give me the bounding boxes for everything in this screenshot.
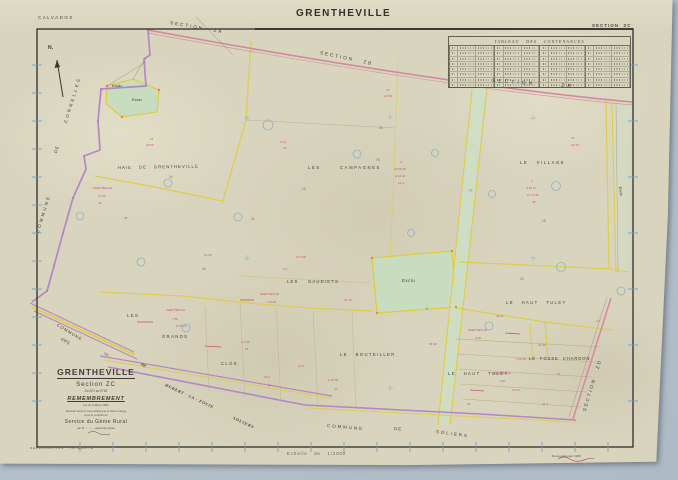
map-label: CLOS xyxy=(221,362,238,366)
parcel-number: 12 xyxy=(268,384,271,387)
map-label: SOLIERS xyxy=(436,430,469,439)
parcel-number: 7 20 30 xyxy=(516,358,526,361)
map-label: LES CAMPAGNES xyxy=(308,166,381,170)
map-label: d'IFS xyxy=(60,337,70,346)
subdivision-number: 13 xyxy=(302,188,306,191)
parcel-number: 4 xyxy=(531,180,533,183)
parcel-number: 14 50 xyxy=(204,254,212,257)
parcel-number: 29 50 xyxy=(146,144,154,147)
parcel-number: 31 A xyxy=(542,403,548,406)
subdivision-number: 16 xyxy=(202,268,206,271)
parcel-number: 75 xyxy=(571,137,574,140)
map-label: LE FOSSE CHARDON xyxy=(529,357,590,361)
parcel-number: 7 50 xyxy=(172,318,178,321)
parcel-number: 23 xyxy=(283,147,286,150)
map-label: DE xyxy=(394,427,402,432)
scanned-cadastral-sheet: CALVADOS GRENTHEVILLE SECTION ZC Echelle… xyxy=(0,0,678,480)
paper-shadow: CALVADOS GRENTHEVILLE SECTION ZC Echelle… xyxy=(0,0,678,480)
parcel-number: P 10 23 xyxy=(176,325,186,328)
parcel-number: GRENTHEVILLE xyxy=(166,310,185,313)
map-label: Exclu xyxy=(617,187,622,197)
parcel-number: 20 50 xyxy=(384,95,392,98)
map-label: LE BOUTEILLER xyxy=(340,353,396,357)
parcel-number: 2 A xyxy=(283,268,287,271)
map-label: DE xyxy=(54,145,61,154)
map-label: LES GAUDIETS xyxy=(287,280,339,284)
map-label: Exclu xyxy=(402,279,415,283)
parcel-number: 9 20 xyxy=(475,337,481,340)
parcel-number: GRENTHEVILLE xyxy=(492,373,511,376)
subdivision-number: 77 xyxy=(469,190,473,193)
map-label: Exclu xyxy=(132,98,142,102)
map-label: LE HAUT TULEY xyxy=(506,301,567,305)
parcel-number: 17 30 xyxy=(98,195,106,198)
parcel-number: 4 a xyxy=(596,320,600,323)
parcel-number: GRENTHEVILLE xyxy=(468,330,487,333)
map-label: SECTION ZA xyxy=(170,21,224,35)
parcel-number: 40 xyxy=(532,201,535,204)
subdivision-number: 25 xyxy=(379,127,383,130)
parcel-number: A 26 50 xyxy=(328,379,338,382)
map-label: Exclu xyxy=(112,84,122,88)
map-label: LE VILLAGE xyxy=(520,161,565,165)
map-label: Cin xyxy=(103,352,109,357)
parcel-number: 27 xyxy=(386,89,389,92)
parcel-number: 32 xyxy=(98,202,101,205)
subdivision-number: 12 xyxy=(520,278,524,281)
parcel-number: 20 40 xyxy=(571,144,579,147)
parcel-number: 12 a xyxy=(398,182,404,185)
map-paper: CALVADOS GRENTHEVILLE SECTION ZC Echelle… xyxy=(0,0,678,480)
parcel-number: 25 A xyxy=(264,376,270,379)
parcel-number: 12 50 xyxy=(512,389,520,392)
map-label: CORNELLES xyxy=(64,76,82,123)
parcel-number: 21 xyxy=(557,373,560,376)
subdivision-number: 14 xyxy=(169,176,173,179)
parcel-number: 4 xyxy=(400,161,402,164)
map-label: SECTION ZB xyxy=(492,79,574,90)
parcel-number: 36 xyxy=(124,217,127,220)
map-label: LES xyxy=(127,314,139,318)
parcel-number: A 20 12 xyxy=(526,187,536,190)
subdivision-number: 15 xyxy=(542,220,546,223)
parcel-number: 26 xyxy=(467,403,470,406)
map-label: COMMUNE xyxy=(36,194,52,234)
subdivision-number: 9 xyxy=(426,308,428,311)
map-label: HUBERT - LA - FOLIE xyxy=(164,383,214,409)
parcel-number: 4 30 xyxy=(499,380,505,383)
parcel-number: 17 A xyxy=(280,141,286,144)
map-label: SECTION ZB xyxy=(320,51,374,67)
revision-note-line2: GRENTHEVILLE ZC 1/2000 xyxy=(552,466,591,470)
parcel-number: 49 12 xyxy=(496,315,504,318)
parcel-number: A 2 50 xyxy=(241,341,250,344)
subdivision-number: 75 xyxy=(376,159,380,162)
parcel-number: 56 40 xyxy=(429,343,437,346)
parcel-number: A 16 32 xyxy=(395,175,405,178)
parcel-number: 47 xyxy=(334,388,337,391)
parcel-number: 25 xyxy=(245,348,248,351)
map-label: COMMUNE xyxy=(327,424,364,432)
map-label: HAIE DE GRENTHEVILLE xyxy=(118,165,199,171)
map-label: GRANDS xyxy=(162,335,188,339)
parcel-number: 21 xyxy=(150,138,153,141)
map-label: SECTION ZD xyxy=(583,359,603,412)
parcel-number: 25 40 xyxy=(538,344,546,347)
parcel-number: 12 A xyxy=(298,365,304,368)
parcel-number: 7 10 60 xyxy=(266,301,276,304)
map-label-layer: SECTION ZASECTION ZBSECTION ZBSECTION ZD… xyxy=(0,0,678,480)
parcel-number: GRENTHEVILLE xyxy=(260,294,279,297)
parcel-number: 17 10 48 xyxy=(527,194,539,197)
map-label: SOLIERS xyxy=(232,416,255,430)
subdivision-number: 11 xyxy=(251,218,254,221)
parcel-number: 10 20 08 xyxy=(394,168,406,171)
parcel-number: GRENTHEVILLE xyxy=(93,188,112,191)
map-label: DE xyxy=(140,362,147,368)
parcel-number: 27 3 00 xyxy=(296,256,306,259)
parcel-number: 21 10 xyxy=(344,299,352,302)
